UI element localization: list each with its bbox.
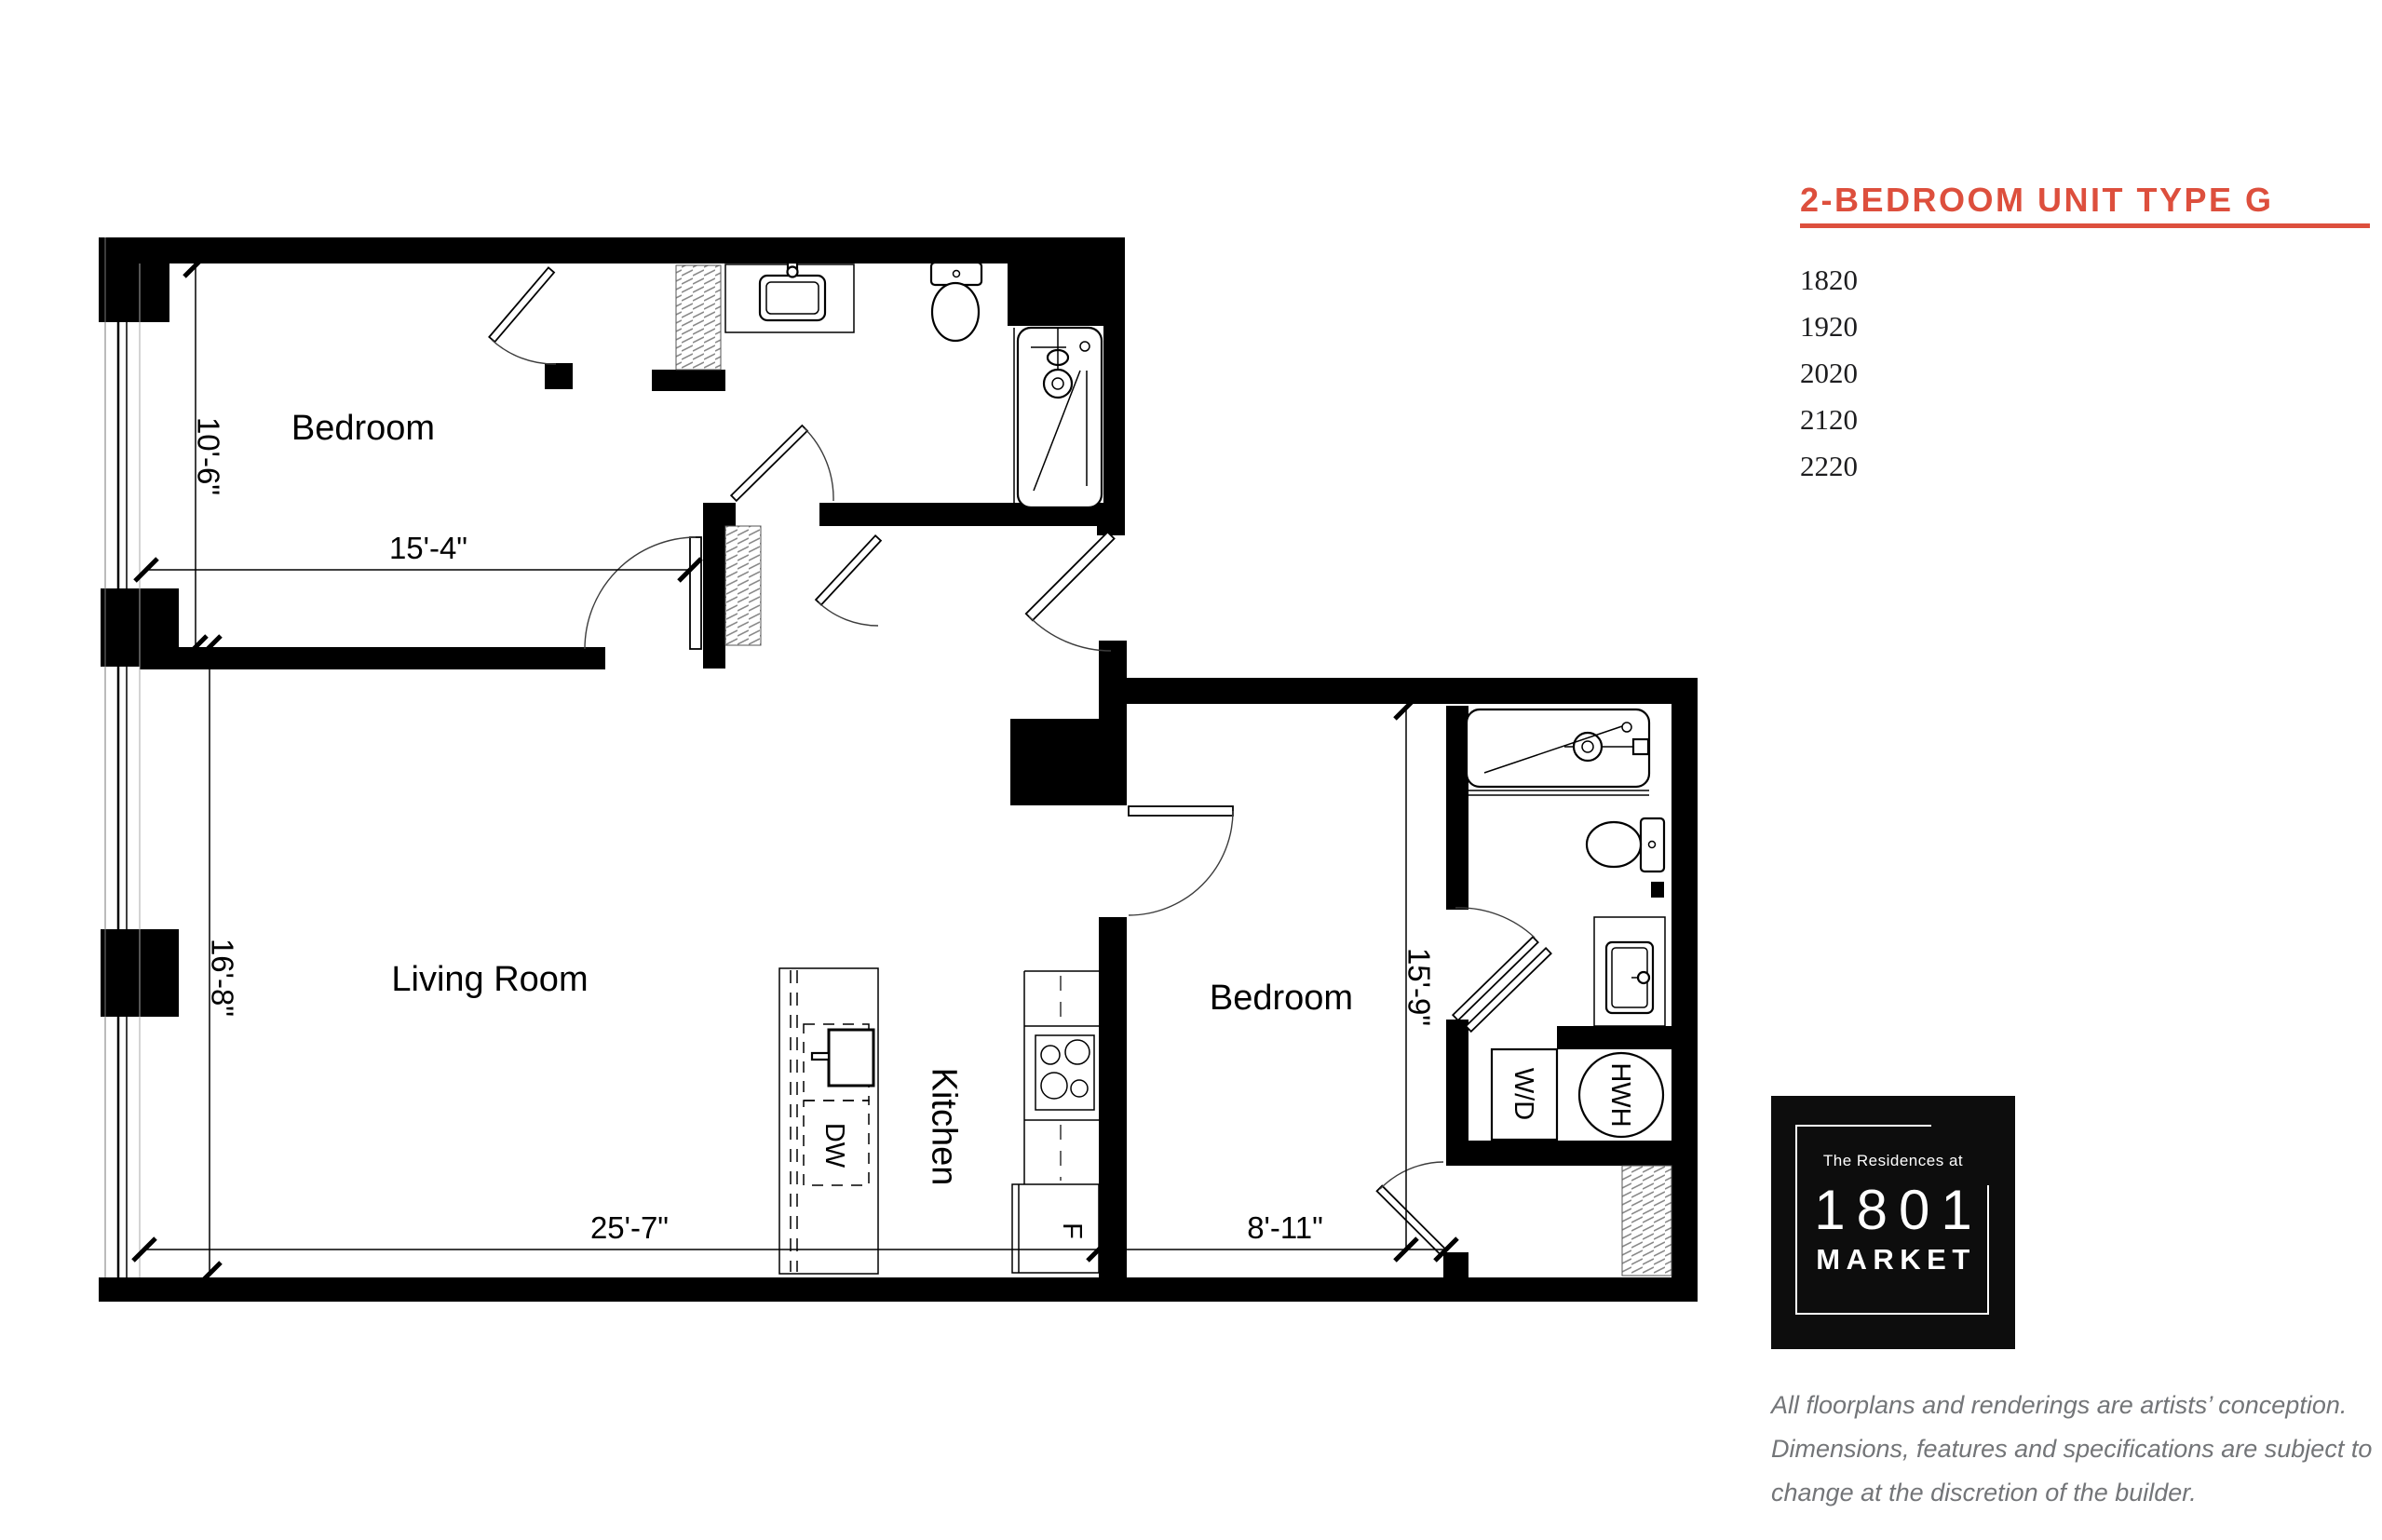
walls (99, 237, 1698, 1302)
bedroom2-door-arc (1129, 811, 1233, 915)
brand-logo: The Residences at 1801 MARKET (1771, 1096, 2015, 1349)
walkin-closet-door-arc (1380, 1162, 1443, 1189)
window-wall (105, 237, 140, 1277)
room-labels: Bedroom Living Room Kitchen Bedroom DW F… (291, 409, 1635, 1239)
bedroom2-door-leaf (1129, 806, 1233, 816)
walkin-closet-hatch (1622, 1166, 1671, 1276)
wall-bed2-west-lower (1099, 917, 1127, 1278)
wall-bath2-west-upper (1446, 706, 1468, 910)
burner-2 (1065, 1040, 1089, 1064)
wall-bed1-closet-jamb (545, 363, 573, 389)
wall-wic-jamb (1443, 1252, 1468, 1278)
unit-number-list: 1820 1920 2020 2120 2220 (1800, 257, 1858, 490)
logo-frame-bottom (1795, 1313, 1989, 1315)
dim-bed1-width: 15'-4" (389, 531, 467, 565)
bedroom1-closet-hatch (676, 265, 721, 370)
unit-number: 2120 (1800, 397, 1858, 443)
kitchen-sink-faucet (812, 1053, 829, 1060)
column-left-1 (99, 240, 169, 322)
unit-number: 1920 (1800, 304, 1858, 350)
logo-number: 1801 (1771, 1178, 2015, 1242)
stove-icon (1035, 1035, 1094, 1110)
wall-entry-column (1010, 719, 1127, 805)
sink1-faucet (788, 267, 798, 277)
logo-frame-top (1795, 1125, 1931, 1127)
entry-door-arc (1029, 616, 1111, 651)
bath1-door-arc (805, 428, 833, 501)
hall-closet-door-leaf (816, 535, 881, 604)
wall-bath2-west-mid (1446, 1020, 1468, 1166)
bedroom1-door-leaf (690, 537, 701, 649)
bedroom1-closet-door-arc (492, 340, 556, 364)
toilet1-bowl (932, 283, 979, 341)
title-underline (1800, 223, 2370, 228)
logo-name: MARKET (1771, 1243, 2015, 1277)
burner-1 (1041, 1046, 1060, 1064)
tub2-showerhead-icon (1574, 733, 1602, 761)
dim-living-width: 25'-7" (590, 1210, 669, 1245)
entry-closet-hatch (725, 526, 761, 645)
entry-door-leaf (1026, 532, 1115, 620)
burner-4 (1071, 1080, 1088, 1097)
wall-wic-top (1468, 1141, 1671, 1166)
wall-bath2-divider (1557, 1026, 1671, 1049)
wall-bottom (99, 1277, 1698, 1302)
fridge-label: F (1057, 1223, 1087, 1239)
wall-corner-block (1008, 261, 1103, 326)
burner-3 (1041, 1073, 1067, 1099)
sink2-faucet (1638, 972, 1649, 983)
toilet1-tank (931, 263, 981, 285)
hall-closet-door-arc (819, 602, 878, 626)
page-title: 2-BEDROOM UNIT TYPE G (1800, 181, 2274, 220)
dishwasher-label: DW (819, 1123, 849, 1169)
kitchen-sink-icon (829, 1030, 873, 1086)
living-room-label: Living Room (391, 960, 588, 999)
unit-number: 2020 (1800, 350, 1858, 397)
bedroom1-label: Bedroom (291, 409, 435, 448)
washer-dryer-label: W/D (1509, 1068, 1538, 1120)
dim-living-depth: 16'-8" (205, 939, 239, 1017)
bath2-door-arc (1455, 908, 1535, 938)
wall-outer-right (1671, 678, 1698, 1302)
disclaimer-text: All floorplans and renderings are artist… (1771, 1384, 2372, 1515)
wall-right-section-top (1120, 678, 1698, 704)
disclaimer-line: change at the discretion of the builder. (1771, 1471, 2372, 1515)
water-heater-label: HWH (1605, 1062, 1635, 1127)
bedroom2-label: Bedroom (1210, 979, 1353, 1018)
bedroom1-door-arc (585, 537, 696, 649)
dim-bed2-width: 8'-11" (1247, 1210, 1323, 1245)
toilet2-tank (1641, 818, 1664, 871)
toilet2-bowl (1587, 822, 1641, 867)
unit-number: 2220 (1800, 443, 1858, 490)
dim-bed1-depth: 10'-6" (191, 417, 225, 495)
logo-tagline: The Residences at (1771, 1152, 2015, 1170)
wall-hall-closet (703, 503, 725, 669)
wall-right-top (1103, 237, 1125, 509)
wall-bed1-closet-bottom (652, 370, 725, 391)
disclaimer-line: Dimensions, features and specifications … (1771, 1427, 2372, 1471)
wall-top (99, 237, 1125, 263)
floorplan-sheet: 10'-6" 15'-4" 16'-8" 25'-7" 8'-11" 15'-9… (0, 0, 2382, 1540)
dim-bed2-depth: 15'-9" (1401, 948, 1436, 1026)
floorplan-drawing: 10'-6" 15'-4" 16'-8" 25'-7" 8'-11" 15'-9… (0, 0, 1769, 1540)
tub1-showerhead-icon (1044, 370, 1072, 398)
tub2-faucet (1633, 739, 1648, 754)
bath1-door-leaf (731, 426, 807, 501)
disclaimer-line: All floorplans and renderings are artist… (1771, 1384, 2372, 1427)
bedroom1-closet-door-leaf (489, 267, 554, 342)
kitchen-label: Kitchen (925, 1068, 964, 1186)
unit-number: 1820 (1800, 257, 1858, 304)
toilet2-paper-holder (1651, 882, 1664, 898)
wall-bath1-south-left (703, 503, 736, 526)
kitchen-island (779, 968, 878, 1274)
